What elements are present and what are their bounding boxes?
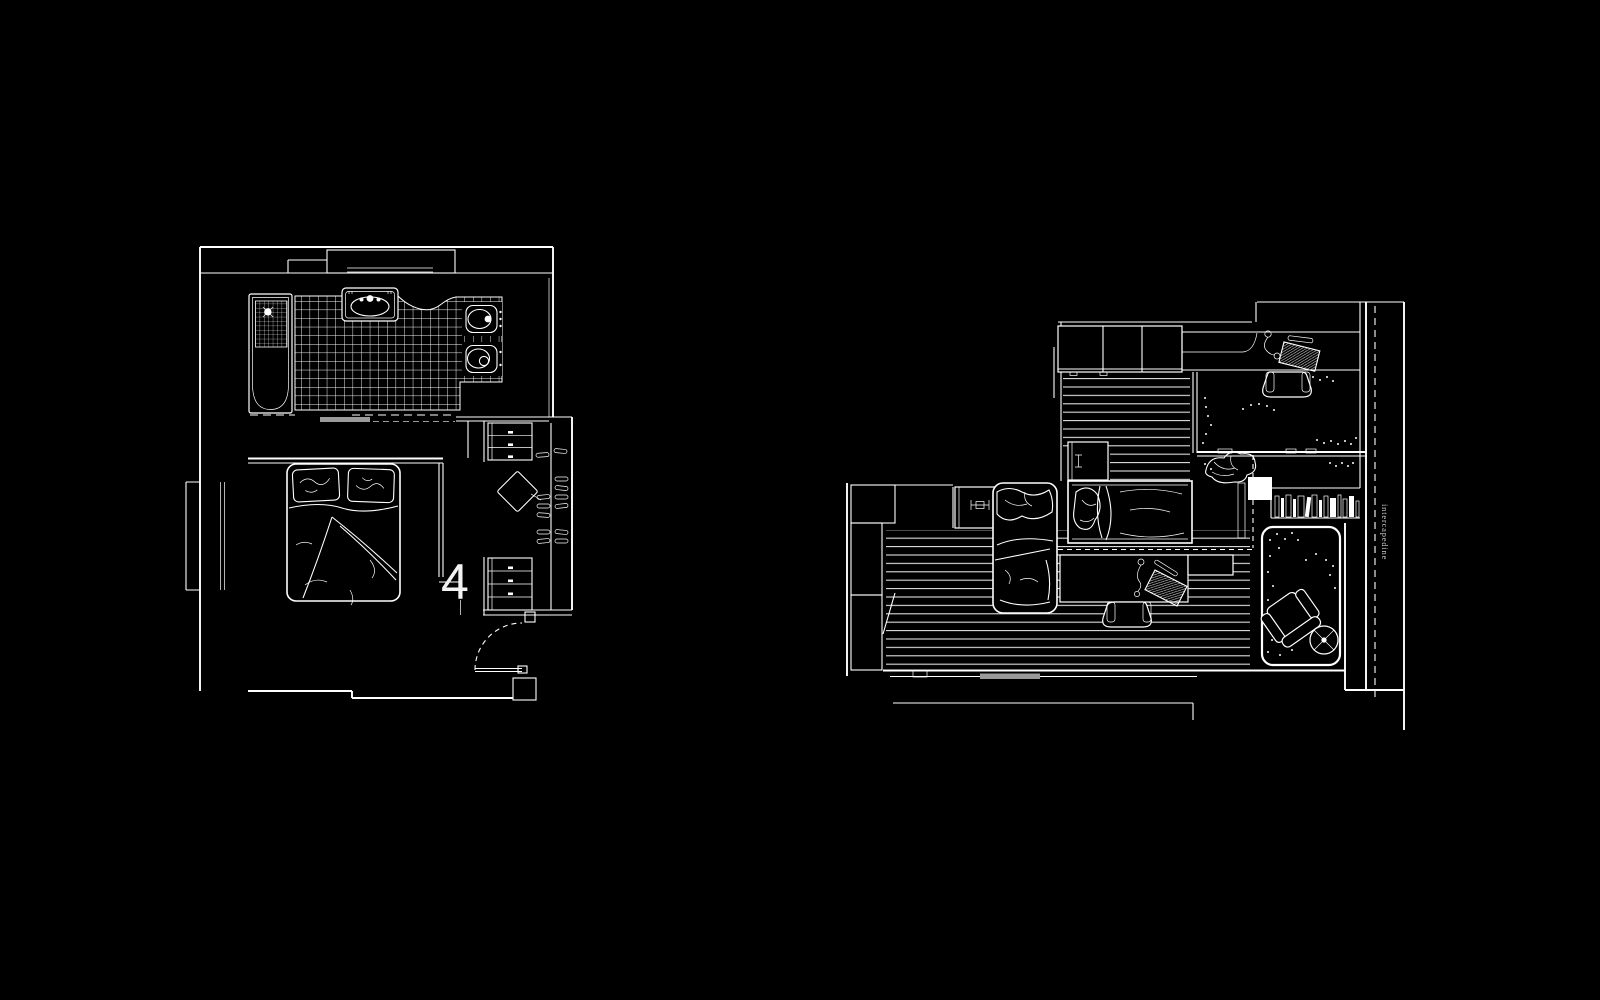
single-bed bbox=[993, 483, 1057, 613]
floor-plans-drawing: 4 bbox=[0, 0, 1600, 1000]
sliding-door-panel bbox=[320, 417, 370, 422]
section-label: 4 bbox=[441, 554, 469, 615]
rug bbox=[1258, 527, 1340, 665]
office-chair bbox=[1103, 602, 1152, 627]
sink bbox=[342, 288, 398, 321]
main-bed bbox=[1068, 481, 1192, 543]
wardrobe bbox=[1058, 326, 1182, 376]
wall-annotation-text: intercapedine bbox=[1380, 504, 1390, 560]
threshold bbox=[980, 674, 1040, 680]
round-side-table bbox=[1310, 626, 1338, 654]
bathtub bbox=[249, 294, 292, 413]
side-table bbox=[955, 487, 997, 528]
blueprint-canvas: 4 bbox=[0, 0, 1600, 1000]
background bbox=[0, 0, 1600, 1000]
nightstand-cabinet bbox=[1068, 442, 1108, 480]
double-bed bbox=[287, 464, 400, 605]
column-pier bbox=[1248, 477, 1272, 500]
desk-chair bbox=[1263, 372, 1312, 397]
section-number: 4 bbox=[441, 554, 469, 610]
shower-area bbox=[256, 301, 288, 347]
cavity-wall-annotation: intercapedine bbox=[1380, 504, 1390, 560]
